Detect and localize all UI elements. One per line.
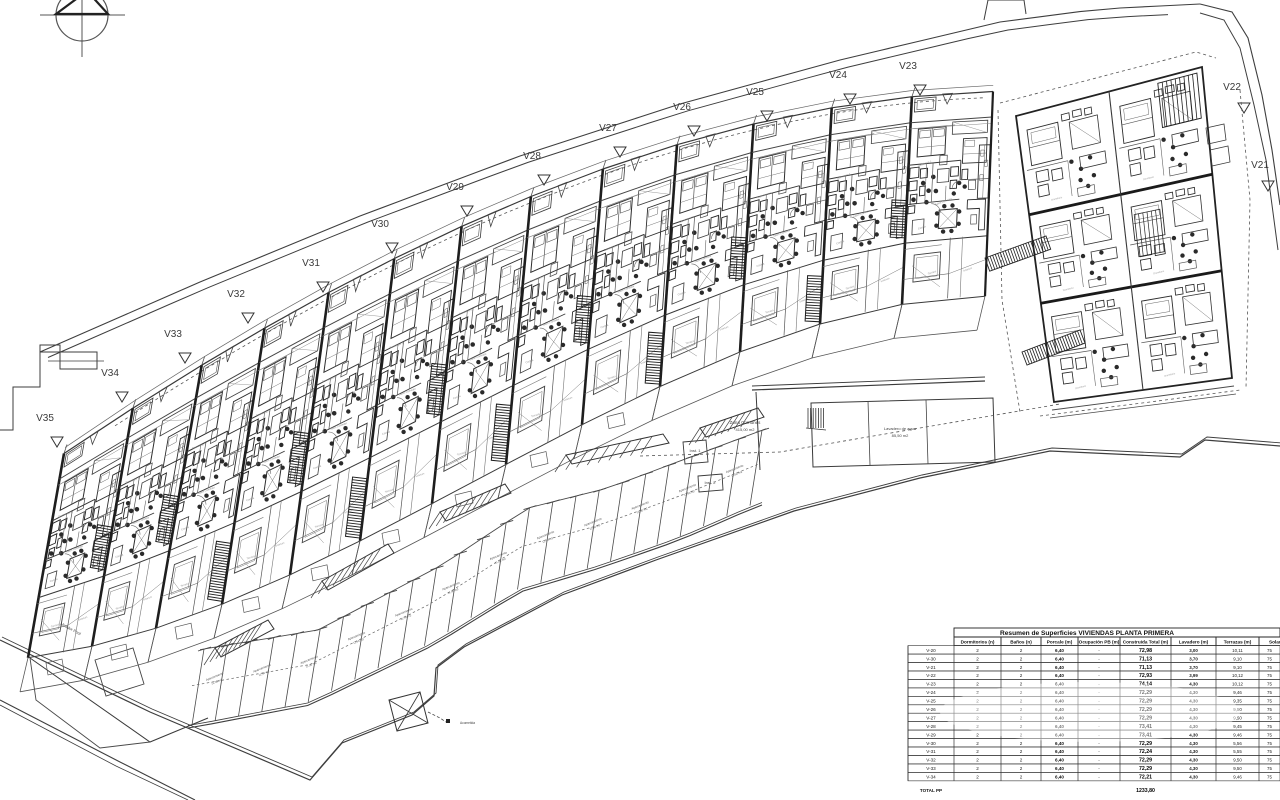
svg-text:4,30: 4,30	[1189, 758, 1198, 763]
svg-text:2: 2	[1020, 741, 1023, 746]
svg-text:Baños (n): Baños (n)	[1010, 639, 1032, 644]
svg-text:75: 75	[1267, 775, 1272, 780]
svg-text:Acometida: Acometida	[460, 721, 475, 725]
svg-text:75: 75	[1267, 648, 1272, 653]
svg-text:5,56: 5,56	[1233, 741, 1242, 746]
svg-text:V-34: V-34	[926, 775, 936, 780]
svg-text:V-26: V-26	[926, 707, 936, 712]
svg-text:V-23: V-23	[926, 682, 936, 687]
svg-text:V33: V33	[164, 329, 182, 340]
svg-text:2: 2	[1020, 656, 1023, 661]
svg-text:4,30: 4,30	[1189, 749, 1198, 754]
svg-text:72,29: 72,29	[1139, 741, 1152, 747]
svg-text:Resumen de Superficies VIVIEND: Resumen de Superficies VIVIENDAS PLANTA …	[1000, 630, 1174, 637]
svg-text:72,93: 72,93	[1139, 673, 1152, 679]
svg-text:2: 2	[976, 665, 979, 670]
svg-text:9,46: 9,46	[1233, 732, 1242, 737]
svg-text:Zona Comunes: Zona Comunes	[730, 420, 762, 425]
svg-text:3,70: 3,70	[1189, 656, 1198, 661]
svg-text:2: 2	[1020, 758, 1023, 763]
svg-text:6,40: 6,40	[1055, 766, 1064, 771]
svg-text:2: 2	[976, 749, 979, 754]
svg-text:Ocupación PB (m): Ocupación PB (m)	[1079, 639, 1120, 644]
svg-text:2: 2	[976, 648, 979, 653]
svg-text:2: 2	[1020, 673, 1023, 678]
svg-text:10,12: 10,12	[1232, 673, 1244, 678]
svg-text:V35: V35	[36, 413, 54, 424]
svg-text:6,40: 6,40	[1055, 741, 1064, 746]
svg-text:75: 75	[1267, 673, 1272, 678]
svg-text:V-25: V-25	[926, 699, 936, 704]
svg-text:6,40: 6,40	[1055, 673, 1064, 678]
svg-text:9,46: 9,46	[1233, 690, 1242, 695]
svg-text:10,11: 10,11	[1232, 648, 1243, 653]
svg-text:3,00: 3,00	[1189, 648, 1198, 653]
svg-text:5,55: 5,55	[1233, 749, 1242, 754]
svg-text:85,50 m2: 85,50 m2	[892, 433, 909, 438]
svg-text:3,70: 3,70	[1189, 665, 1198, 670]
svg-text:9,35: 9,35	[1233, 699, 1242, 704]
svg-text:75: 75	[1267, 690, 1272, 695]
svg-text:75: 75	[1267, 716, 1272, 721]
svg-text:72,21: 72,21	[1139, 775, 1152, 781]
svg-text:4,30: 4,30	[1189, 766, 1198, 771]
svg-text:2: 2	[1020, 648, 1023, 653]
svg-text:6,40: 6,40	[1055, 648, 1064, 653]
svg-text:Construida Total (m): Construida Total (m)	[1123, 639, 1169, 644]
svg-text:2: 2	[1020, 665, 1023, 670]
svg-text:V27: V27	[599, 123, 617, 134]
svg-text:75: 75	[1267, 707, 1272, 712]
svg-text:V21: V21	[1251, 160, 1269, 171]
svg-text:V25: V25	[746, 87, 764, 98]
svg-text:2: 2	[976, 758, 979, 763]
svg-text:V-22: V-22	[926, 673, 936, 678]
svg-text:V-30: V-30	[926, 656, 936, 661]
svg-text:4,30: 4,30	[1189, 682, 1198, 687]
svg-text:V-27: V-27	[926, 716, 936, 721]
svg-text:4,30: 4,30	[1189, 775, 1198, 780]
svg-text:2: 2	[1020, 766, 1023, 771]
svg-text:75: 75	[1267, 758, 1272, 763]
svg-text:V-24: V-24	[926, 690, 936, 695]
svg-text:75: 75	[1267, 682, 1272, 687]
svg-text:3,99: 3,99	[1189, 673, 1198, 678]
svg-text:V-28: V-28	[926, 724, 936, 729]
svg-text:V-29: V-29	[926, 732, 936, 737]
svg-text:6,40: 6,40	[1055, 758, 1064, 763]
svg-text:V29: V29	[446, 182, 464, 193]
svg-text:75: 75	[1267, 724, 1272, 729]
svg-text:2: 2	[976, 673, 979, 678]
svg-text:V-32: V-32	[926, 758, 936, 763]
svg-text:Lavadero de agua: Lavadero de agua	[884, 426, 917, 431]
svg-text:9,50: 9,50	[1233, 758, 1242, 763]
svg-text:9,10: 9,10	[1233, 665, 1242, 670]
svg-text:V-20: V-20	[926, 648, 936, 653]
svg-text:72,29: 72,29	[1139, 758, 1152, 764]
svg-text:75: 75	[1267, 766, 1272, 771]
svg-text:75: 75	[1267, 732, 1272, 737]
svg-text:2: 2	[976, 775, 979, 780]
svg-text:2: 2	[976, 732, 979, 737]
svg-text:Lavadero (m): Lavadero (m)	[1179, 639, 1209, 644]
svg-text:72,24: 72,24	[1139, 749, 1152, 755]
svg-text:2: 2	[1020, 749, 1023, 754]
svg-text:71,13: 71,13	[1139, 665, 1152, 671]
svg-text:Dormitorios (n): Dormitorios (n)	[961, 639, 995, 644]
svg-text:Porcale (m): Porcale (m)	[1047, 639, 1073, 644]
svg-text:V-33: V-33	[926, 766, 936, 771]
svg-text:9,50: 9,50	[1233, 766, 1242, 771]
svg-text:75: 75	[1267, 699, 1272, 704]
svg-text:6,40: 6,40	[1055, 665, 1064, 670]
svg-text:V30: V30	[371, 219, 389, 230]
svg-text:V24: V24	[829, 70, 847, 81]
svg-text:2: 2	[976, 766, 979, 771]
svg-text:2: 2	[1020, 775, 1023, 780]
svg-text:V32: V32	[227, 289, 245, 300]
svg-text:6,40: 6,40	[1055, 656, 1064, 661]
svg-text:2: 2	[976, 682, 979, 687]
svg-text:9,45: 9,45	[1233, 724, 1242, 729]
svg-text:415,00 m2: 415,00 m2	[736, 427, 756, 432]
svg-text:1233,80: 1233,80	[1136, 788, 1155, 794]
svg-text:Terrazas (m): Terrazas (m)	[1224, 639, 1252, 644]
svg-text:75: 75	[1267, 749, 1272, 754]
svg-text:71,13: 71,13	[1139, 656, 1152, 662]
svg-text:V23: V23	[899, 61, 917, 72]
svg-text:75: 75	[1267, 741, 1272, 746]
svg-text:V22: V22	[1223, 82, 1241, 93]
svg-text:V-21: V-21	[926, 665, 936, 670]
svg-text:9,46: 9,46	[1233, 775, 1242, 780]
svg-text:V26: V26	[673, 102, 691, 113]
svg-text:4,30: 4,30	[1189, 741, 1198, 746]
svg-text:6,40: 6,40	[1055, 775, 1064, 780]
svg-text:V-31: V-31	[926, 749, 936, 754]
svg-text:V31: V31	[302, 258, 320, 269]
svg-text:72,98: 72,98	[1139, 648, 1152, 654]
svg-text:9,10: 9,10	[1233, 656, 1242, 661]
svg-text:2: 2	[976, 656, 979, 661]
svg-text:6,40: 6,40	[1055, 749, 1064, 754]
svg-text:V34: V34	[101, 368, 119, 379]
svg-text:2: 2	[976, 741, 979, 746]
svg-text:TOTAL PP: TOTAL PP	[920, 788, 942, 793]
svg-text:10,12: 10,12	[1232, 682, 1244, 687]
svg-text:V-30: V-30	[926, 741, 936, 746]
svg-text:75: 75	[1267, 656, 1272, 661]
svg-text:75: 75	[1267, 665, 1272, 670]
svg-text:Solarium: Solarium	[1269, 639, 1280, 644]
svg-text:72,29: 72,29	[1139, 766, 1152, 772]
svg-text:Inst. 1: Inst. 1	[690, 448, 702, 453]
svg-text:V28: V28	[523, 151, 541, 162]
